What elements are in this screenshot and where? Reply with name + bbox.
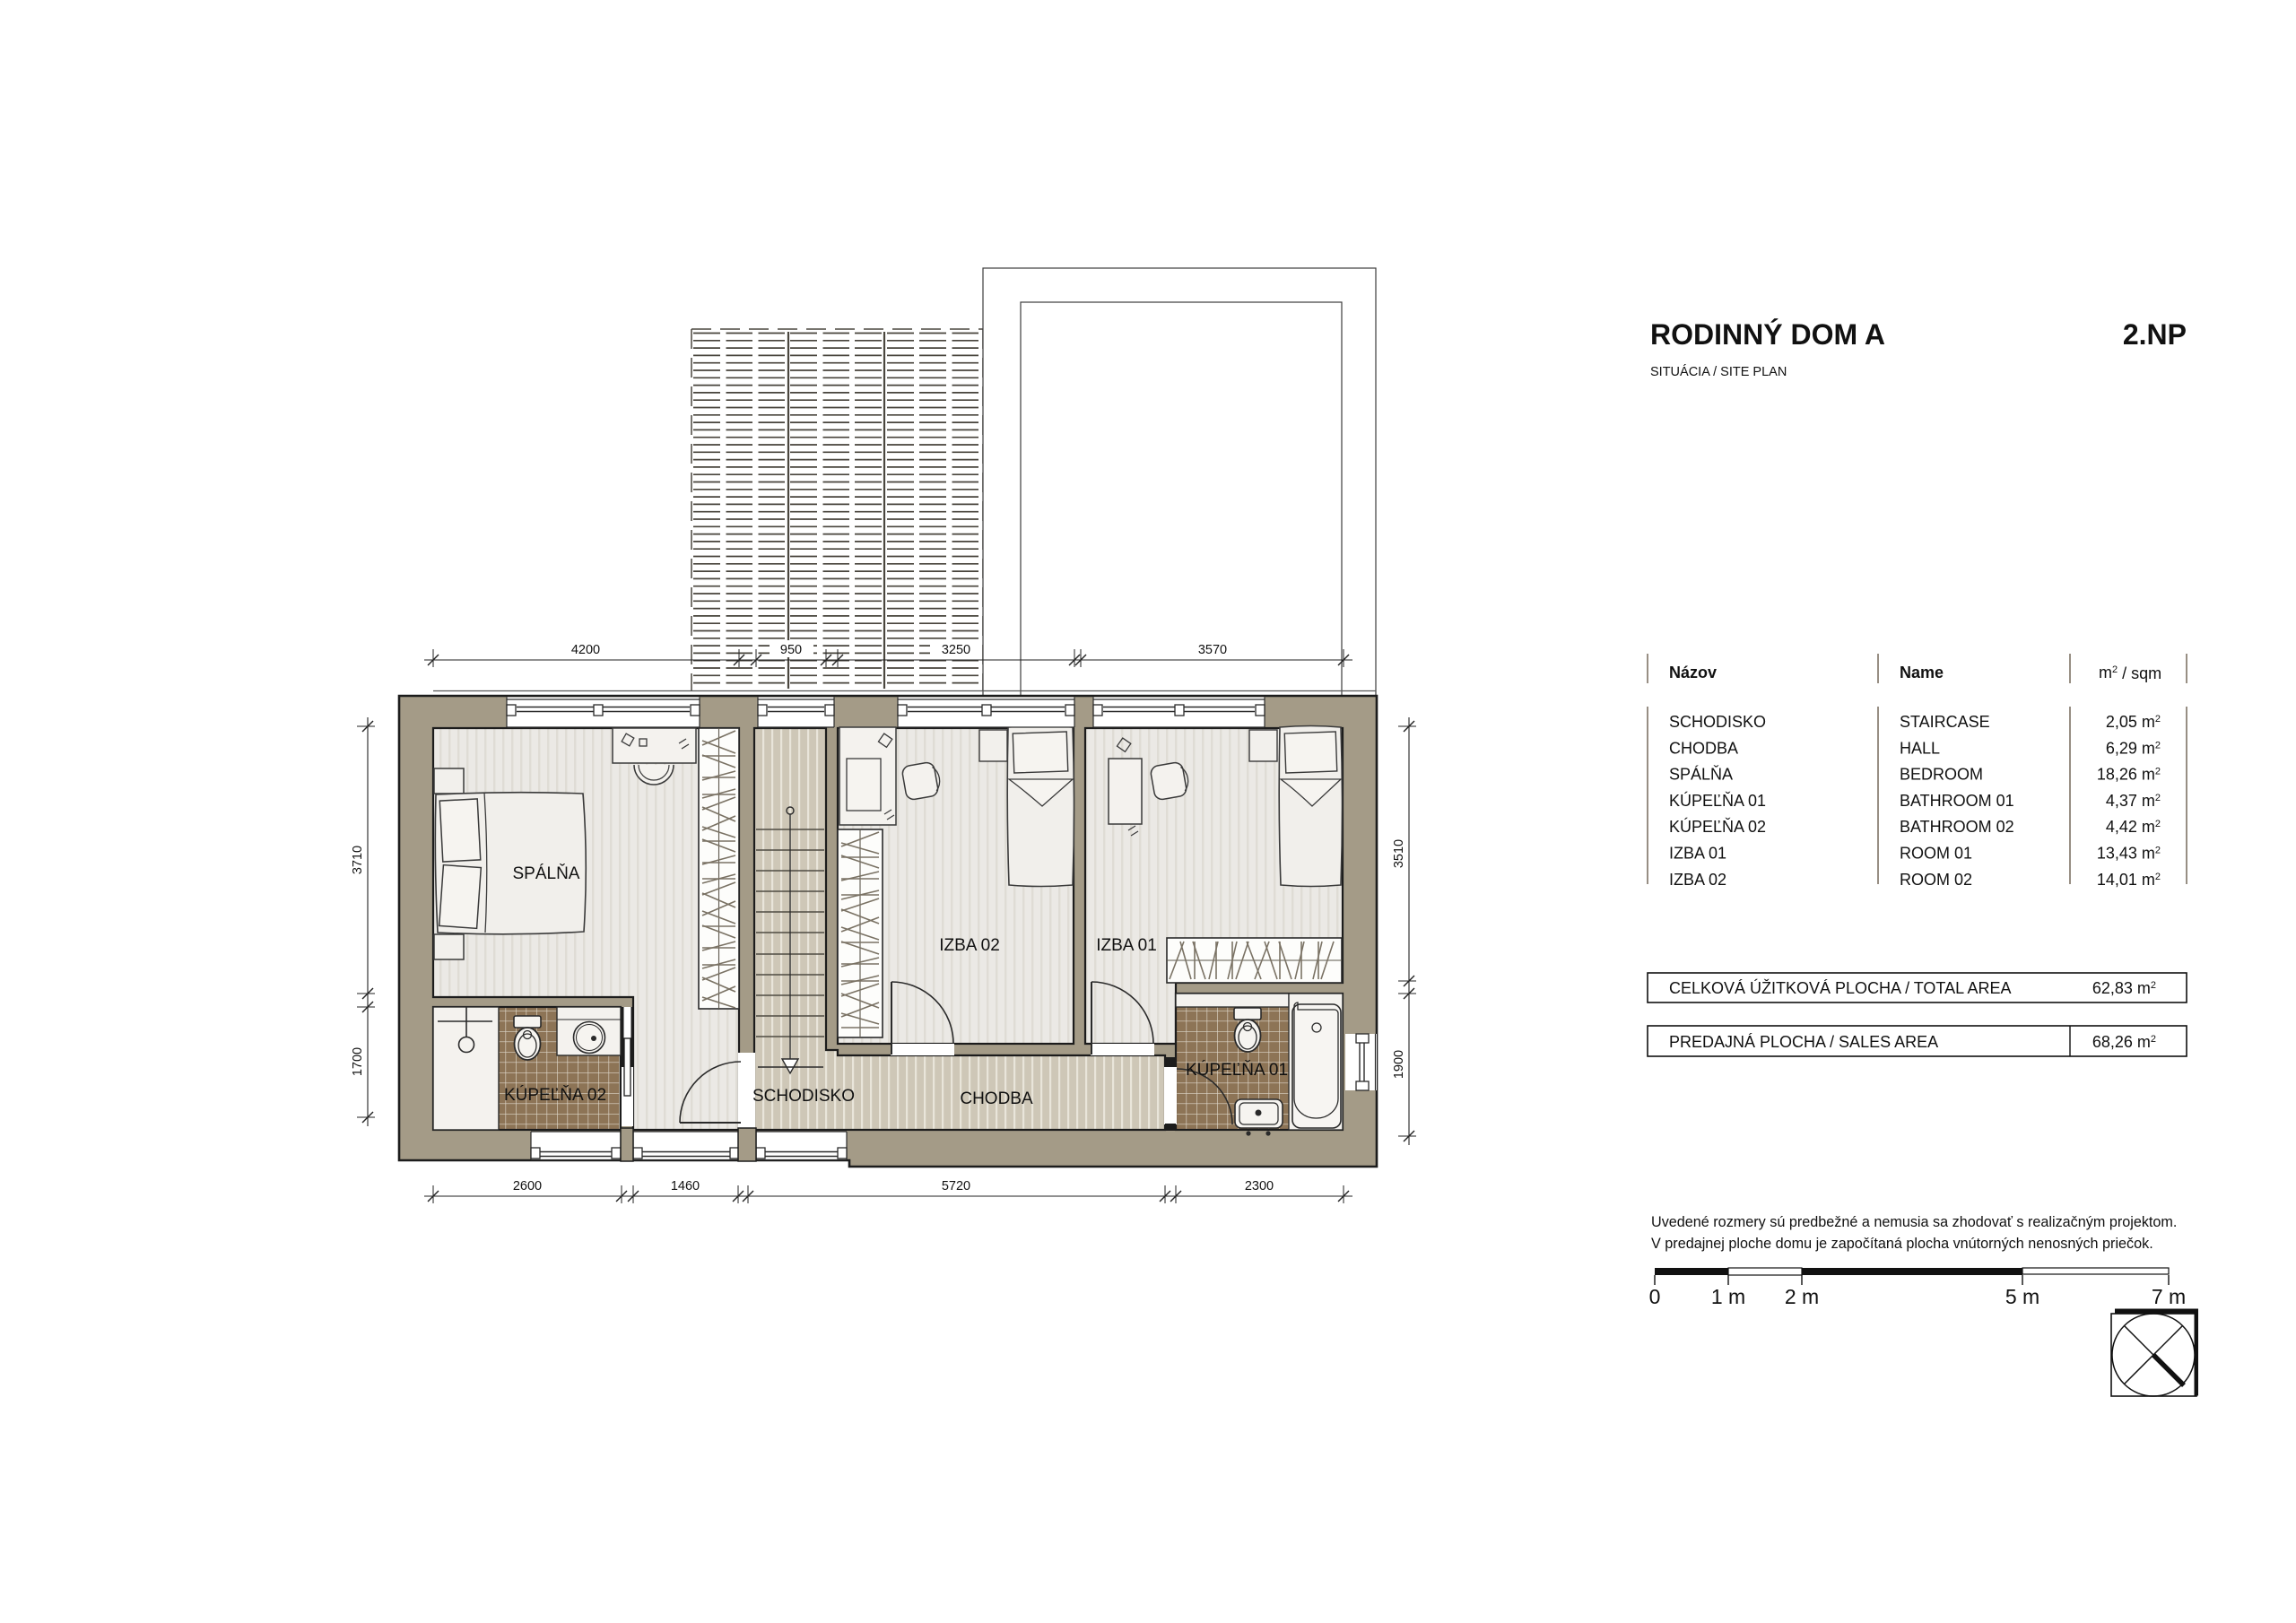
svg-text:1900: 1900 <box>1392 1050 1406 1079</box>
svg-text:2 m: 2 m <box>1785 1285 1819 1308</box>
svg-text:STAIRCASE: STAIRCASE <box>1900 713 1990 731</box>
svg-text:4200: 4200 <box>571 643 600 657</box>
svg-text:BATHROOM 02: BATHROOM 02 <box>1900 818 2014 836</box>
svg-text:IZBA 02: IZBA 02 <box>1669 871 1726 889</box>
svg-text:ROOM 01: ROOM 01 <box>1900 845 1972 863</box>
svg-text:6,29 m2: 6,29 m2 <box>2106 739 2161 757</box>
svg-text:2600: 2600 <box>513 1179 542 1193</box>
svg-text:PREDAJNÁ PLOCHA / SALES AREA: PREDAJNÁ PLOCHA / SALES AREA <box>1669 1033 1938 1051</box>
svg-text:Uvedené rozmery sú predbežné a: Uvedené rozmery sú predbežné a nemusia s… <box>1651 1214 2177 1230</box>
svg-text:KÚPEĽŇA 01: KÚPEĽŇA 01 <box>1186 1060 1288 1080</box>
svg-text:5 m: 5 m <box>2005 1285 2039 1308</box>
svg-text:ROOM 02: ROOM 02 <box>1900 871 1972 889</box>
svg-text:IZBA 01: IZBA 01 <box>1096 936 1157 955</box>
svg-text:HALL: HALL <box>1900 739 1940 757</box>
svg-text:5720: 5720 <box>942 1179 970 1193</box>
svg-text:0: 0 <box>1649 1285 1661 1308</box>
svg-text:2300: 2300 <box>1245 1179 1274 1193</box>
svg-text:2,05 m2: 2,05 m2 <box>2106 713 2161 731</box>
svg-text:7 m: 7 m <box>2152 1285 2186 1308</box>
svg-text:950: 950 <box>780 643 802 657</box>
svg-text:SCHODISKO: SCHODISKO <box>1669 713 1766 731</box>
svg-text:CHODBA: CHODBA <box>1669 739 1738 757</box>
svg-text:Name: Name <box>1900 664 1944 681</box>
svg-text:1700: 1700 <box>351 1047 365 1076</box>
svg-text:4,42 m2: 4,42 m2 <box>2106 818 2161 836</box>
svg-text:68,26 m2: 68,26 m2 <box>2092 1033 2156 1051</box>
svg-text:2.NP: 2.NP <box>2123 318 2187 351</box>
svg-text:BATHROOM 01: BATHROOM 01 <box>1900 792 2014 810</box>
svg-text:14,01 m2: 14,01 m2 <box>2097 871 2161 889</box>
svg-text:BEDROOM: BEDROOM <box>1900 766 1983 784</box>
svg-text:SCHODISKO: SCHODISKO <box>752 1087 855 1106</box>
svg-text:SITUÁCIA / SITE PLAN: SITUÁCIA / SITE PLAN <box>1650 364 1787 379</box>
svg-text:4,37 m2: 4,37 m2 <box>2106 792 2161 810</box>
svg-text:CELKOVÁ ÚŽITKOVÁ PLOCHA / TOTA: CELKOVÁ ÚŽITKOVÁ PLOCHA / TOTAL AREA <box>1669 978 2011 997</box>
svg-text:KÚPEĽŇA 02: KÚPEĽŇA 02 <box>1669 817 1766 836</box>
svg-text:18,26 m2: 18,26 m2 <box>2097 766 2161 784</box>
svg-text:SPÁLŇA: SPÁLŇA <box>1669 766 1733 784</box>
svg-text:KÚPEĽŇA 02: KÚPEĽŇA 02 <box>504 1085 606 1105</box>
svg-text:3710: 3710 <box>351 846 365 874</box>
svg-text:62,83 m2: 62,83 m2 <box>2092 979 2156 997</box>
svg-text:1460: 1460 <box>671 1179 700 1193</box>
svg-text:m2 / sqm: m2 / sqm <box>2099 664 2161 682</box>
svg-text:3570: 3570 <box>1198 643 1227 657</box>
svg-text:Názov: Názov <box>1669 664 1717 681</box>
svg-text:1 m: 1 m <box>1711 1285 1745 1308</box>
svg-text:3510: 3510 <box>1392 839 1406 868</box>
svg-text:CHODBA: CHODBA <box>960 1089 1033 1108</box>
svg-text:IZBA 01: IZBA 01 <box>1669 845 1726 863</box>
svg-text:IZBA 02: IZBA 02 <box>939 936 1000 955</box>
svg-text:RODINNÝ DOM A: RODINNÝ DOM A <box>1650 318 1885 351</box>
svg-text:SPÁLŇA: SPÁLŇA <box>513 864 580 883</box>
svg-text:KÚPEĽŇA 01: KÚPEĽŇA 01 <box>1669 791 1766 810</box>
svg-text:3250: 3250 <box>942 643 970 657</box>
svg-text:V predajnej ploche domu je zap: V predajnej ploche domu je započítaná pl… <box>1651 1236 2153 1252</box>
svg-text:13,43 m2: 13,43 m2 <box>2097 845 2161 863</box>
